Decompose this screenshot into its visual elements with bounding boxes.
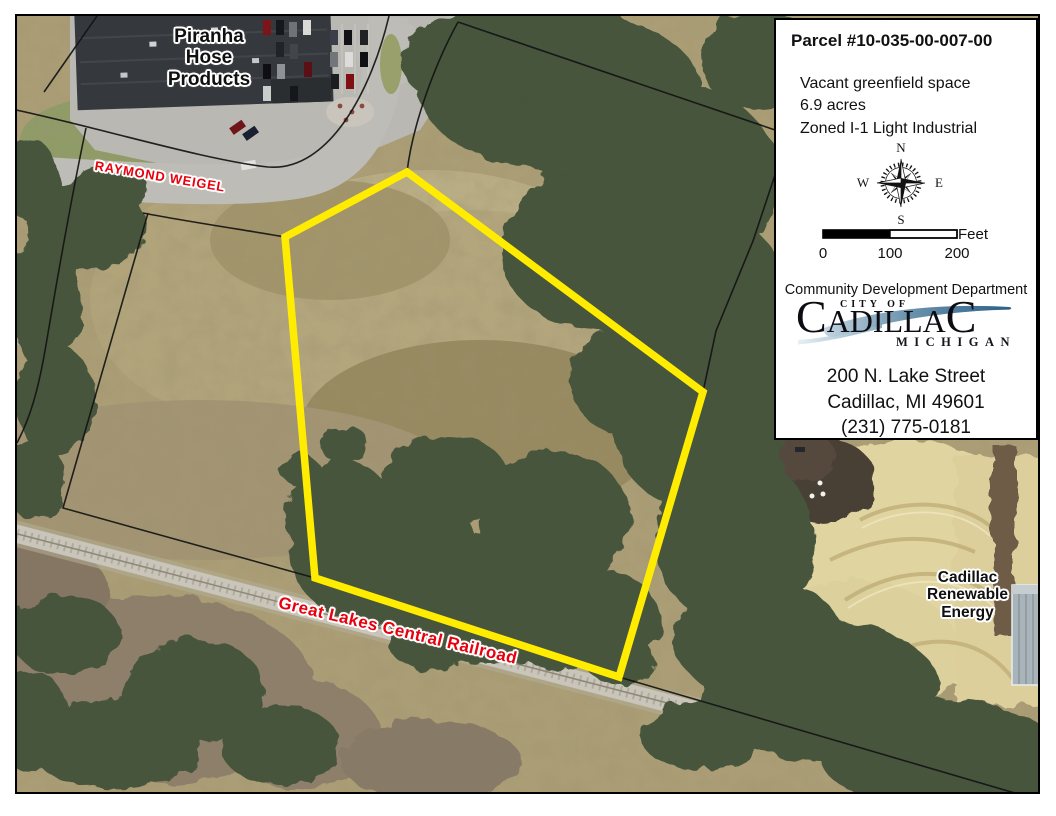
scale-tick-0: 0: [803, 245, 843, 262]
label-line: Piranha: [149, 26, 269, 47]
address-line: 200 N. Lake Street: [776, 364, 1036, 390]
parcel-title: Parcel #10-035-00-007-00: [791, 31, 992, 51]
logo-initial: C: [796, 291, 827, 342]
label-line: Renewable: [865, 586, 1040, 603]
label-piranha-hose-products: Piranha Hose Products: [149, 26, 269, 90]
address-line: (231) 775-0181: [776, 415, 1036, 441]
scale-bar: [821, 226, 973, 240]
city-of-cadillac-logo: CITY OF CADILLAC MICHIGAN: [796, 296, 1020, 356]
address-line: Cadillac, MI 49601: [776, 390, 1036, 416]
label-line: Cadillac: [865, 569, 1040, 586]
logo-michigan-text: MICHIGAN: [896, 335, 1016, 350]
detail-line: Zoned I-1 Light Industrial: [800, 118, 977, 140]
scale-tick-200: 200: [937, 245, 977, 262]
parcel-details: Vacant greenfield space 6.9 acres Zoned …: [800, 73, 977, 140]
scale-unit-label: Feet: [958, 226, 988, 243]
detail-line: Vacant greenfield space: [800, 73, 977, 95]
map-frame: Piranha Hose Products RAYMOND WEIGEL Gre…: [15, 14, 1040, 794]
scale-tick-100: 100: [870, 245, 910, 262]
label-line: Products: [149, 69, 269, 90]
detail-line: 6.9 acres: [800, 95, 977, 117]
logo-middle: ADILLA: [827, 303, 946, 339]
parcel-info-box: Parcel #10-035-00-007-00 Vacant greenfie…: [774, 18, 1038, 440]
label-cadillac-renewable-energy: Cadillac Renewable Energy: [865, 569, 1040, 621]
compass-west-label: W: [857, 175, 870, 190]
compass-rose: N E S W: [856, 138, 946, 228]
compass-east-label: E: [935, 175, 943, 190]
parcel-map-page: Piranha Hose Products RAYMOND WEIGEL Gre…: [0, 0, 1056, 816]
compass-south-label: S: [897, 212, 904, 227]
department-address: 200 N. Lake Street Cadillac, MI 49601 (2…: [776, 364, 1036, 441]
label-line: Hose: [149, 47, 269, 68]
label-line: Energy: [865, 604, 1040, 621]
compass-north-label: N: [896, 140, 906, 155]
